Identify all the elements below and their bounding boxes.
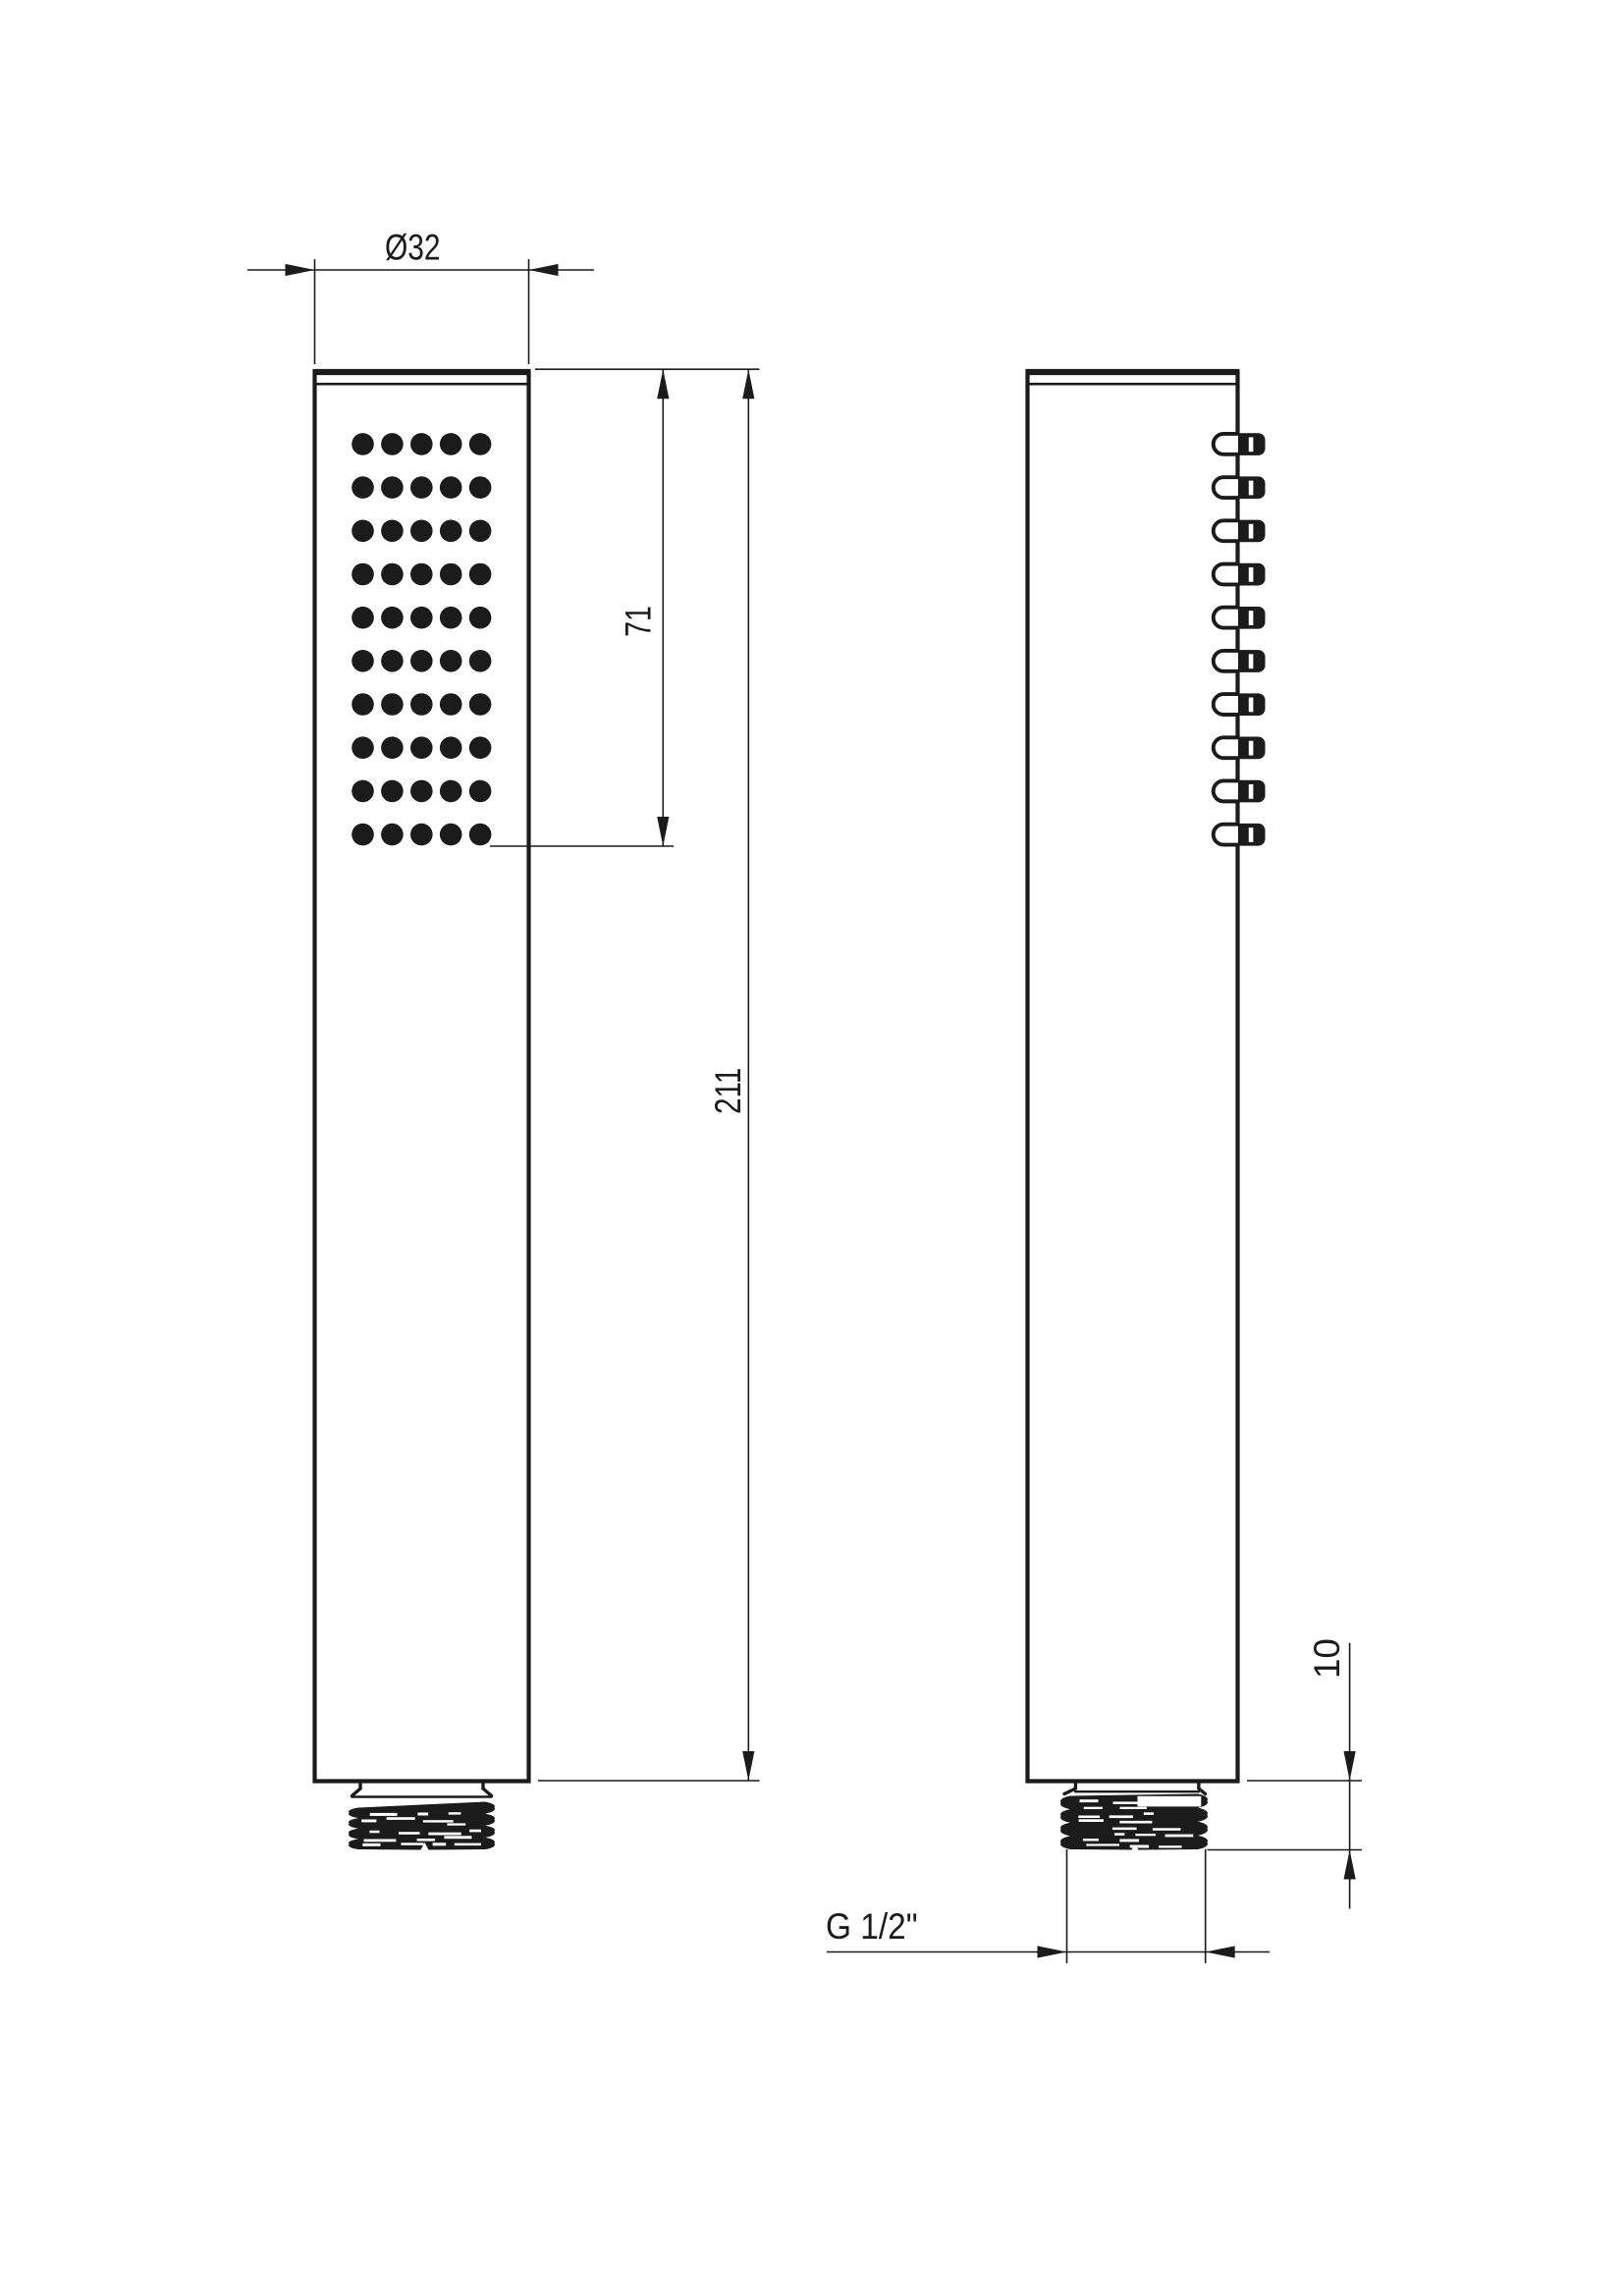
svg-text:G 1/2": G 1/2" [826, 1906, 918, 1947]
svg-text:71: 71 [619, 606, 659, 637]
svg-text:10: 10 [1307, 1638, 1347, 1679]
svg-text:Ø32: Ø32 [385, 229, 441, 269]
svg-text:211: 211 [709, 1068, 749, 1114]
